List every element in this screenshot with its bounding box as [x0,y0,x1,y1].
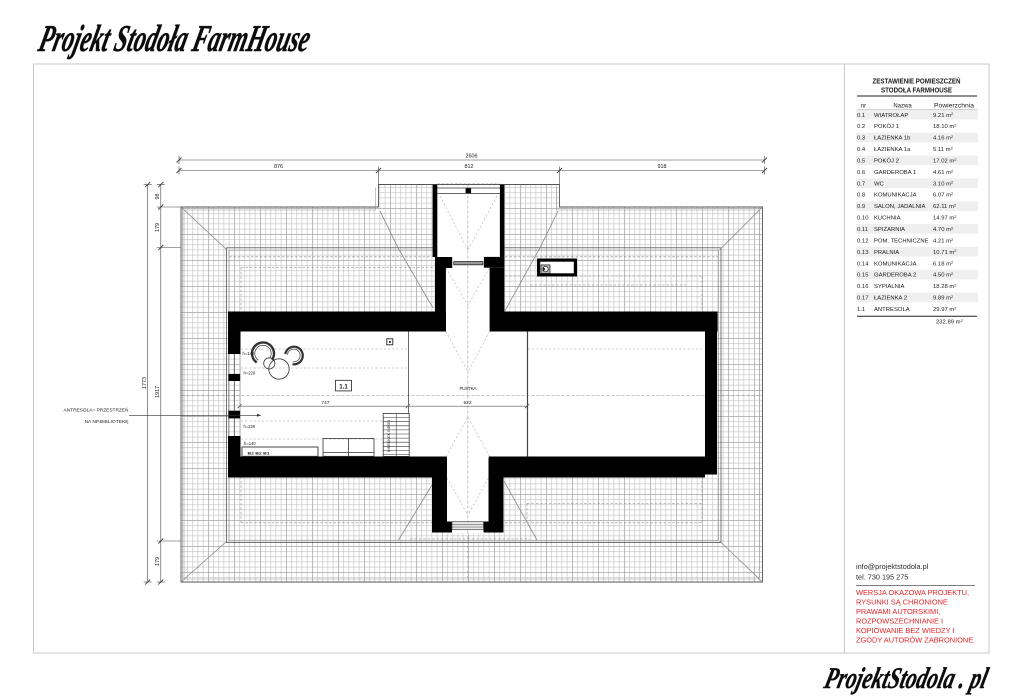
svg-text:WC: WC [874,181,885,187]
svg-text:98: 98 [155,194,161,200]
svg-text:62.11 m2: 62.11 m2 [933,203,957,211]
svg-text:h=140: h=140 [244,441,256,446]
svg-text:ANTRESOLA: ANTRESOLA [874,307,910,313]
svg-text:0.2: 0.2 [857,124,865,130]
svg-text:4.21 m2: 4.21 m2 [933,237,954,245]
svg-text:Projekt Stodoła FarmHouse: Projekt Stodoła FarmHouse [34,19,315,60]
svg-text:GARDEROBA 1: GARDEROBA 1 [874,170,916,176]
svg-text:GARDEROBA 2: GARDEROBA 2 [874,273,916,279]
svg-text:2606: 2606 [466,154,478,160]
svg-text:1917: 1917 [155,386,161,398]
svg-text:B2 B2 B1: B2 B2 B1 [248,450,271,455]
svg-text:4.16 m2: 4.16 m2 [933,134,954,142]
svg-text:nr: nr [861,104,866,110]
svg-text:0.9: 0.9 [857,204,865,210]
svg-text:232.89 m2: 232.89 m2 [936,318,964,326]
svg-text:4.61 m2: 4.61 m2 [933,168,954,176]
svg-text:9.21 m2: 9.21 m2 [933,111,954,119]
svg-text:747: 747 [321,400,329,406]
svg-text:6.18 m2: 6.18 m2 [933,260,954,268]
svg-text:0.16: 0.16 [857,284,869,290]
svg-text:0.13: 0.13 [857,250,869,256]
svg-text:WERSJA OKAZOWA PROJEKTU,: WERSJA OKAZOWA PROJEKTU, [856,588,969,597]
svg-text:Powierzchnia: Powierzchnia [934,104,975,110]
svg-text:ŁAZIENKA 2: ŁAZIENKA 2 [874,296,907,302]
svg-text:18.10 m2: 18.10 m2 [933,123,957,131]
svg-text:ANTRESOLA= PRZESTRZEŃ: ANTRESOLA= PRZESTRZEŃ [64,408,129,413]
svg-text:812: 812 [465,164,474,170]
svg-text:ŁAZIENKA 1a: ŁAZIENKA 1a [874,147,911,153]
svg-text:SYPIALNIA: SYPIALNIA [874,284,905,290]
svg-text:0.14: 0.14 [857,261,869,267]
svg-text:1.1: 1.1 [857,307,865,313]
svg-text:PUSTKA: PUSTKA [460,386,478,391]
svg-text:ProjektStodola . pl: ProjektStodola . pl [821,661,992,694]
svg-text:0.7: 0.7 [857,181,865,187]
svg-text:3.10 m2: 3.10 m2 [933,180,954,188]
svg-text:522: 522 [463,400,471,406]
svg-text:0.8: 0.8 [857,193,866,199]
svg-text:6.07 m2: 6.07 m2 [933,191,954,199]
svg-text:179: 179 [155,223,161,232]
svg-text:1773: 1773 [142,377,148,389]
svg-text:0.4: 0.4 [857,147,866,153]
svg-text:RYSUNKI SĄ CHRONIONE: RYSUNKI SĄ CHRONIONE [856,598,948,607]
svg-text:29.97 m2: 29.97 m2 [933,305,957,313]
svg-text:0.10: 0.10 [857,216,869,222]
svg-text:0.11: 0.11 [857,227,868,233]
svg-text:10.71 m2: 10.71 m2 [933,248,957,256]
svg-text:KOPIOWANIE BEZ WIEDZY I: KOPIOWANIE BEZ WIEDZY I [856,626,955,635]
svg-text:info@projektstodola.pl: info@projektstodola.pl [856,562,929,571]
svg-text:9.89 m2: 9.89 m2 [933,294,954,302]
svg-text:0.17: 0.17 [857,296,868,302]
svg-text:ŁAZIENKA 1b: ŁAZIENKA 1b [874,136,911,142]
svg-text:ROZPOWSZECHNIANIE I: ROZPOWSZECHNIANIE I [856,617,943,626]
svg-text:PRALNIA: PRALNIA [874,250,899,256]
svg-text:18.28 m2: 18.28 m2 [933,283,957,291]
svg-text:NA NP.BIBLIOTEKĘ: NA NP.BIBLIOTEKĘ [85,419,129,424]
svg-text:0.5: 0.5 [857,159,866,165]
svg-text:SPIŻARNIA: SPIŻARNIA [874,226,905,233]
svg-text:POKÓJ 2: POKÓJ 2 [874,158,899,165]
svg-text:tel. 730 195 275: tel. 730 195 275 [856,573,908,582]
svg-text:KOMUNIKACJA: KOMUNIKACJA [874,261,917,267]
svg-text:POKÓJ 1: POKÓJ 1 [874,123,899,130]
svg-text:1.1: 1.1 [339,383,348,390]
svg-text:SALON, JADALNIA: SALON, JADALNIA [874,204,925,210]
svg-text:5.11 m2: 5.11 m2 [933,146,954,154]
svg-text:ZGODY AUTORÓW ZABRONIONE.: ZGODY AUTORÓW ZABRONIONE. [856,636,975,645]
svg-text:KOMUNIKACJA: KOMUNIKACJA [874,193,917,199]
svg-text:0.1: 0.1 [857,113,865,119]
svg-text:h=140: h=140 [243,351,255,356]
svg-text:179: 179 [155,557,161,566]
svg-text:918: 918 [658,164,667,170]
svg-text:h=220: h=220 [244,371,256,376]
svg-text:STODOŁA FARMHOUSE: STODOŁA FARMHOUSE [881,86,952,95]
svg-text:h=220: h=220 [244,424,256,429]
svg-text:876: 876 [274,164,283,170]
svg-text:POM. TECHNICZNE: POM. TECHNICZNE [874,238,929,244]
svg-text:4.50 m2: 4.50 m2 [933,271,954,279]
svg-text:4.70 m2: 4.70 m2 [933,225,954,233]
svg-text:14.97 m2: 14.97 m2 [933,214,957,222]
svg-text:ZESTAWIENIE POMIESZCZEŃ: ZESTAWIENIE POMIESZCZEŃ [873,77,961,86]
svg-text:17.02 m2: 17.02 m2 [933,157,957,165]
svg-text:0.15: 0.15 [857,273,869,279]
svg-text:0.3: 0.3 [857,136,866,142]
svg-text:PRAWAMI AUTORSKIMI,: PRAWAMI AUTORSKIMI, [856,607,940,616]
svg-text:KIERUNEK BIEGU: KIERUNEK BIEGU [387,420,391,452]
svg-text:0.6: 0.6 [857,170,866,176]
svg-text:0.12: 0.12 [857,238,868,244]
svg-text:Nazwa: Nazwa [893,104,912,110]
svg-text:WIATROŁAP: WIATROŁAP [874,113,908,119]
svg-text:KUCHNIA: KUCHNIA [874,216,901,222]
